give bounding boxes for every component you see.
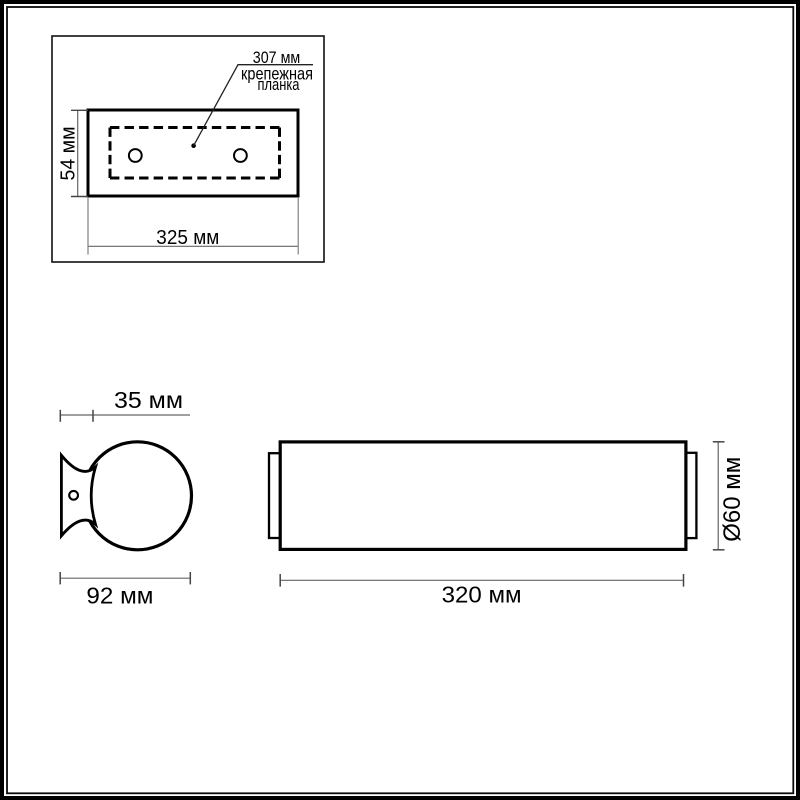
svg-text:35 мм: 35 мм [114,387,183,413]
svg-text:320 мм: 320 мм [442,582,522,608]
svg-text:92 мм: 92 мм [86,582,153,608]
svg-text:54 мм: 54 мм [58,127,80,181]
svg-text:325 мм: 325 мм [156,227,219,249]
svg-text:Ø60 мм: Ø60 мм [719,457,746,542]
svg-text:планка: планка [258,76,301,94]
